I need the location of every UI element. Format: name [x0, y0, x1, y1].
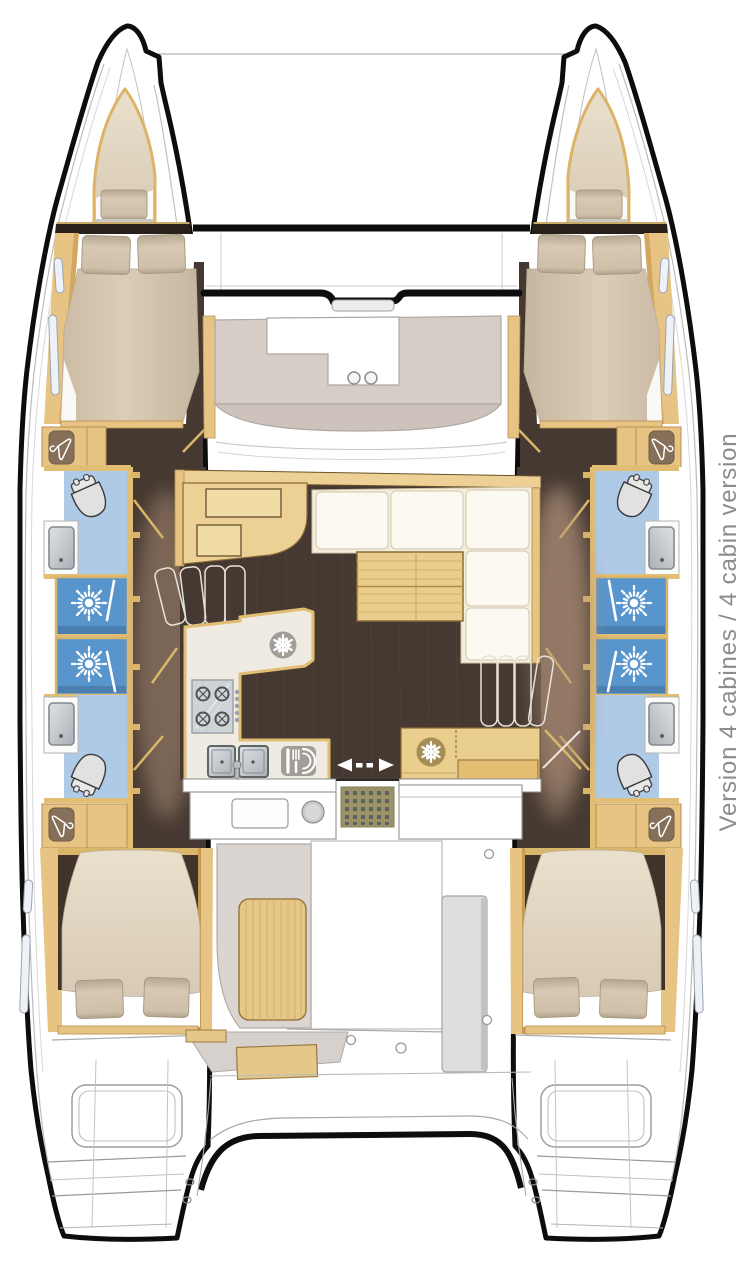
- svg-text:Version 4 cabines / 4 cabin ve: Version 4 cabines / 4 cabin version: [715, 433, 742, 832]
